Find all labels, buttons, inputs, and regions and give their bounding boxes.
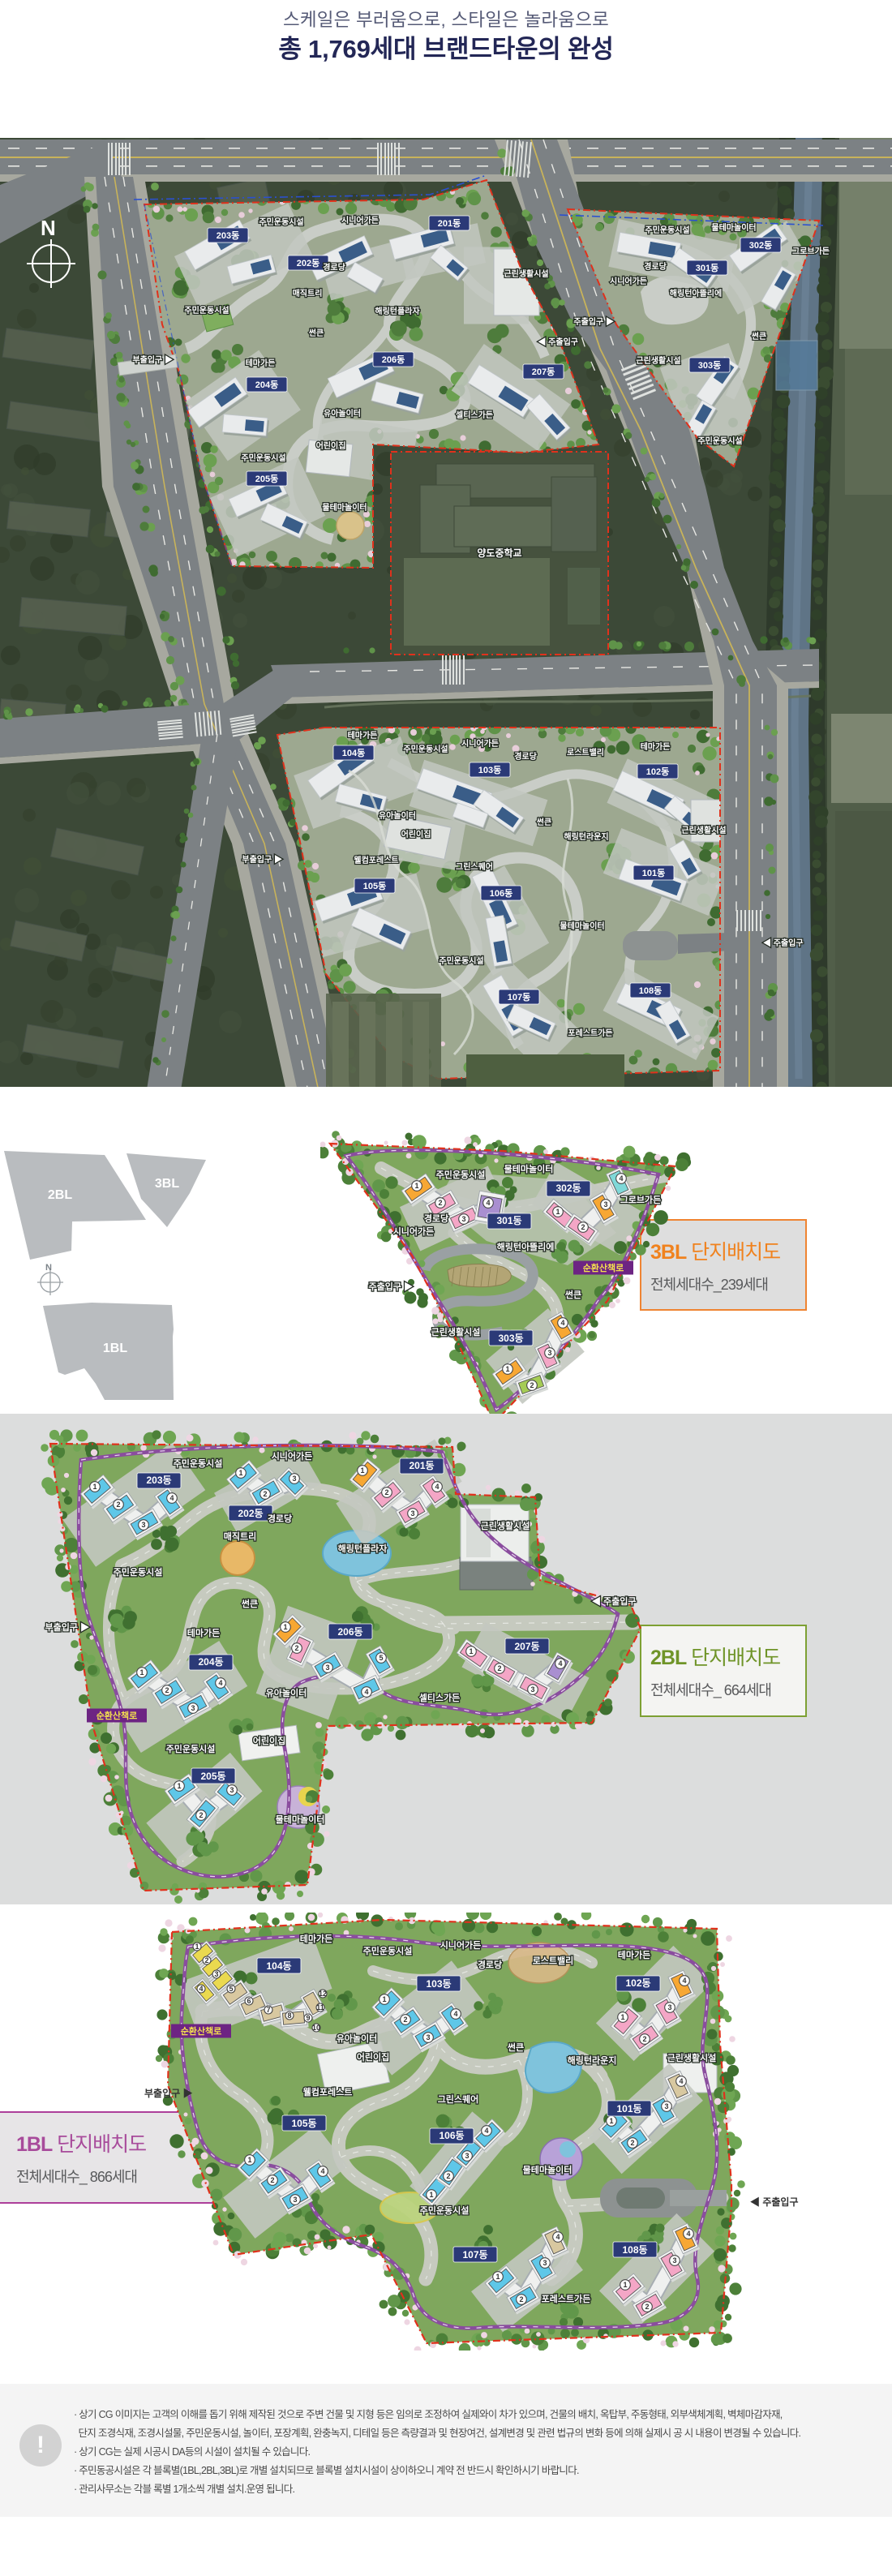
svg-text:302동: 302동 xyxy=(749,240,772,251)
svg-text:3: 3 xyxy=(667,2003,671,2011)
svg-text:4: 4 xyxy=(486,1199,490,1207)
svg-text:양도중학교: 양도중학교 xyxy=(477,547,521,559)
svg-text:1: 1 xyxy=(247,2156,251,2164)
svg-text:1: 1 xyxy=(429,2191,433,2199)
svg-text:경로당: 경로당 xyxy=(424,1213,448,1224)
svg-text:303동: 303동 xyxy=(498,1333,523,1344)
svg-text:부출입구 ▶: 부출입구 ▶ xyxy=(242,854,282,865)
svg-text:근린생활시설: 근린생활시설 xyxy=(481,1520,530,1531)
svg-text:3: 3 xyxy=(530,1685,534,1694)
svg-text:순환산책로: 순환산책로 xyxy=(583,1262,624,1273)
svg-text:물테마놀이터: 물테마놀이터 xyxy=(504,1163,554,1174)
svg-text:1: 1 xyxy=(609,2117,613,2125)
svg-text:303동: 303동 xyxy=(698,360,721,371)
svg-text:4: 4 xyxy=(218,1679,222,1687)
svg-text:105동: 105동 xyxy=(363,881,386,891)
svg-text:3: 3 xyxy=(542,2259,547,2267)
svg-text:주민운동시설: 주민운동시설 xyxy=(114,1566,163,1578)
svg-text:매직트리: 매직트리 xyxy=(293,288,323,298)
svg-text:시니어가든: 시니어가든 xyxy=(272,1450,313,1462)
svg-text:4: 4 xyxy=(619,1174,623,1183)
svg-text:썬큰: 썬큰 xyxy=(565,1289,581,1300)
svg-text:유아놀이터: 유아놀이터 xyxy=(337,2033,378,2044)
svg-text:해링턴플라자: 해링턴플라자 xyxy=(375,306,420,316)
svg-text:201동: 201동 xyxy=(409,1460,434,1471)
svg-text:경로당: 경로당 xyxy=(268,1513,292,1524)
svg-text:근린생활시설: 근린생활시설 xyxy=(504,268,548,279)
svg-text:테마가든: 테마가든 xyxy=(300,1933,332,1944)
svg-text:205동: 205동 xyxy=(200,1771,225,1782)
svg-text:10: 10 xyxy=(312,2024,320,2032)
svg-text:104동: 104동 xyxy=(342,748,365,758)
svg-text:6: 6 xyxy=(247,1997,251,2005)
svg-text:4: 4 xyxy=(169,1494,174,1502)
svg-text:102동: 102동 xyxy=(625,1977,650,1989)
svg-text:12: 12 xyxy=(319,1990,327,1998)
svg-text:1: 1 xyxy=(555,1208,560,1216)
svg-text:3: 3 xyxy=(293,2196,297,2204)
svg-text:2: 2 xyxy=(270,2176,274,2184)
svg-text:시니어가든: 시니어가든 xyxy=(393,1226,435,1237)
svg-text:물테마놀이터: 물테마놀이터 xyxy=(322,502,367,513)
svg-text:어린이집: 어린이집 xyxy=(253,1735,285,1746)
svg-text:◀ 주출입구: ◀ 주출입구 xyxy=(592,1595,637,1607)
svg-text:1: 1 xyxy=(505,1365,509,1373)
svg-text:물테마놀이터: 물테마놀이터 xyxy=(711,222,756,233)
svg-text:4: 4 xyxy=(686,2230,690,2238)
svg-text:주민운동시설: 주민운동시설 xyxy=(174,1458,223,1469)
svg-text:5: 5 xyxy=(229,1985,233,1993)
svg-text:103동: 103동 xyxy=(426,1978,451,1990)
svg-text:4: 4 xyxy=(679,2077,683,2085)
svg-text:그로브가든: 그로브가든 xyxy=(792,246,830,256)
svg-text:시니어가든: 시니어가든 xyxy=(461,738,499,749)
svg-text:8: 8 xyxy=(287,2011,291,2020)
svg-text:유아놀이터: 유아놀이터 xyxy=(266,1687,307,1698)
svg-text:1BL: 1BL xyxy=(103,1342,127,1355)
svg-text:썬큰: 썬큰 xyxy=(309,328,324,338)
svg-text:4: 4 xyxy=(435,1483,439,1491)
svg-text:207동: 207동 xyxy=(532,367,555,377)
svg-text:물테마놀이터: 물테마놀이터 xyxy=(523,2164,573,2175)
svg-text:시니어가든: 시니어가든 xyxy=(610,276,647,286)
svg-text:3: 3 xyxy=(214,1970,218,1978)
svg-text:주민운동시설: 주민운동시설 xyxy=(259,217,303,227)
svg-text:썬큰: 썬큰 xyxy=(508,2041,524,2053)
svg-text:206동: 206동 xyxy=(382,354,405,365)
svg-text:106동: 106동 xyxy=(439,2130,464,2141)
svg-text:202동: 202동 xyxy=(297,258,319,268)
svg-text:테마가든: 테마가든 xyxy=(348,730,378,741)
svg-text:1: 1 xyxy=(620,2013,624,2021)
svg-text:테마가든: 테마가든 xyxy=(246,358,276,368)
svg-text:그로브가든: 그로브가든 xyxy=(620,1194,662,1205)
svg-text:어린이집: 어린이집 xyxy=(316,440,346,451)
svg-text:2: 2 xyxy=(497,1664,501,1672)
svg-text:2: 2 xyxy=(581,1223,585,1231)
svg-text:1: 1 xyxy=(469,1647,473,1655)
svg-text:3BL: 3BL xyxy=(155,1177,179,1191)
svg-text:3: 3 xyxy=(426,2033,430,2041)
svg-text:셀티스가든: 셀티스가든 xyxy=(419,1692,461,1703)
svg-text:N: N xyxy=(41,216,56,240)
svg-text:1: 1 xyxy=(139,1668,144,1677)
svg-text:3: 3 xyxy=(191,1704,195,1712)
svg-text:주출입구 ▶: 주출입구 ▶ xyxy=(368,1281,413,1292)
svg-text:시니어가든: 시니어가든 xyxy=(341,215,379,225)
svg-text:경로당: 경로당 xyxy=(514,751,537,762)
svg-text:1: 1 xyxy=(195,1943,199,1951)
svg-text:주민운동시설: 주민운동시설 xyxy=(363,1945,413,1956)
svg-text:4: 4 xyxy=(320,2167,324,2175)
svg-text:204동: 204동 xyxy=(255,380,278,390)
svg-text:105동: 105동 xyxy=(291,2118,316,2129)
svg-text:4: 4 xyxy=(364,1688,368,1696)
svg-text:로스트밸리: 로스트밸리 xyxy=(567,747,604,758)
svg-text:그린스퀘어: 그린스퀘어 xyxy=(456,861,493,872)
svg-text:주민운동시설: 주민운동시설 xyxy=(403,744,448,754)
svg-text:2: 2 xyxy=(645,2303,649,2311)
svg-text:물테마놀이터: 물테마놀이터 xyxy=(276,1814,325,1825)
svg-text:순환산책로: 순환산책로 xyxy=(181,2025,222,2037)
svg-text:부출입구 ▶: 부출입구 ▶ xyxy=(45,1621,89,1633)
svg-text:시니어가든: 시니어가든 xyxy=(440,1939,482,1951)
svg-text:2: 2 xyxy=(530,1381,534,1389)
svg-text:◀ 주출입구: ◀ 주출입구 xyxy=(763,938,804,948)
svg-text:경로당: 경로당 xyxy=(478,1959,502,1970)
svg-text:1: 1 xyxy=(92,1483,96,1491)
svg-text:3: 3 xyxy=(141,1521,145,1529)
svg-text:107동: 107동 xyxy=(462,2249,487,2260)
svg-text:101동: 101동 xyxy=(616,2103,641,2114)
svg-text:103동: 103동 xyxy=(478,765,501,775)
svg-text:2: 2 xyxy=(263,1490,267,1498)
svg-text:301동: 301동 xyxy=(696,263,718,273)
svg-text:201동: 201동 xyxy=(438,218,461,229)
svg-text:경로당: 경로당 xyxy=(644,261,667,272)
svg-text:N: N xyxy=(45,1263,52,1273)
svg-text:7: 7 xyxy=(266,2006,270,2014)
svg-text:203동: 203동 xyxy=(217,230,239,241)
svg-text:웰컴포레스트: 웰컴포레스트 xyxy=(303,2086,353,2097)
svg-text:어린이집: 어린이집 xyxy=(357,2051,389,2063)
svg-text:2: 2 xyxy=(630,2139,634,2147)
svg-text:주민운동시설: 주민운동시설 xyxy=(645,225,689,235)
svg-text:주민운동시설: 주민운동시설 xyxy=(436,1169,486,1180)
svg-text:테마가든: 테마가든 xyxy=(187,1627,220,1638)
svg-text:주민운동시설: 주민운동시설 xyxy=(697,436,742,446)
svg-text:주민운동시설: 주민운동시설 xyxy=(241,453,285,463)
svg-text:4: 4 xyxy=(555,2233,560,2241)
svg-text:경로당: 경로당 xyxy=(323,262,345,273)
svg-text:2: 2 xyxy=(116,1501,120,1509)
svg-text:108동: 108동 xyxy=(639,985,662,996)
svg-text:근린생활시설: 근린생활시설 xyxy=(636,355,680,366)
svg-text:웰컴포레스트: 웰컴포레스트 xyxy=(354,855,398,865)
svg-text:해링턴아뜰리에: 해링턴아뜰리에 xyxy=(497,1241,555,1252)
svg-text:순환산책로: 순환산책로 xyxy=(96,1710,138,1721)
svg-text:4: 4 xyxy=(453,2010,457,2018)
svg-text:104동: 104동 xyxy=(266,1960,291,1972)
svg-text:3: 3 xyxy=(603,1200,607,1209)
svg-text:어린이집: 어린이집 xyxy=(401,829,431,839)
svg-text:1: 1 xyxy=(238,1469,242,1477)
svg-text:9: 9 xyxy=(306,2014,310,2022)
svg-text:3: 3 xyxy=(461,1215,465,1223)
svg-text:썬큰: 썬큰 xyxy=(752,331,766,341)
svg-text:106동: 106동 xyxy=(490,888,512,899)
svg-text:물테마놀이터: 물테마놀이터 xyxy=(560,921,604,931)
svg-text:테마가든: 테마가든 xyxy=(618,1949,650,1960)
svg-text:2BL: 2BL xyxy=(48,1188,72,1202)
svg-text:2: 2 xyxy=(204,1956,208,1964)
svg-text:5: 5 xyxy=(379,1654,383,1662)
svg-text:주출입구 ▶: 주출입구 ▶ xyxy=(573,316,614,327)
svg-text:매직트리: 매직트리 xyxy=(224,1531,256,1542)
svg-text:4: 4 xyxy=(199,1985,203,1993)
svg-text:해링턴라운지: 해링턴라운지 xyxy=(568,2054,617,2066)
svg-text:근린생활시설: 근린생활시설 xyxy=(667,2052,717,2063)
svg-text:203동: 203동 xyxy=(146,1475,171,1486)
svg-text:근린생활시설: 근린생활시설 xyxy=(431,1326,481,1337)
svg-text:3: 3 xyxy=(229,1786,234,1794)
svg-text:주민운동시설: 주민운동시설 xyxy=(166,1743,216,1754)
svg-text:3: 3 xyxy=(325,1664,329,1672)
svg-text:2: 2 xyxy=(165,1686,169,1694)
svg-text:1: 1 xyxy=(495,2273,500,2281)
svg-text:3: 3 xyxy=(410,1509,414,1518)
svg-text:204동: 204동 xyxy=(198,1656,223,1668)
svg-text:205동: 205동 xyxy=(255,474,278,484)
svg-text:포레스트가든: 포레스트가든 xyxy=(568,1028,612,1038)
svg-text:◀ 주출입구: ◀ 주출입구 xyxy=(538,337,578,347)
svg-text:1: 1 xyxy=(360,1466,364,1475)
svg-text:2: 2 xyxy=(199,1811,203,1819)
svg-text:1: 1 xyxy=(283,1623,287,1631)
svg-text:107동: 107동 xyxy=(508,992,530,1002)
svg-text:셀티스가든: 셀티스가든 xyxy=(456,410,493,420)
svg-text:101동: 101동 xyxy=(642,868,665,878)
svg-text:4: 4 xyxy=(682,1977,686,1985)
svg-text:2: 2 xyxy=(384,1488,388,1496)
svg-text:주민운동시설: 주민운동시설 xyxy=(184,305,229,316)
svg-text:주민운동시설: 주민운동시설 xyxy=(439,955,483,966)
svg-text:2: 2 xyxy=(519,2295,523,2303)
svg-text:1: 1 xyxy=(623,2281,627,2289)
svg-text:206동: 206동 xyxy=(337,1626,362,1638)
svg-text:4: 4 xyxy=(560,1319,564,1327)
svg-text:3: 3 xyxy=(664,2102,668,2110)
svg-text:2: 2 xyxy=(403,2016,407,2024)
svg-text:썬큰: 썬큰 xyxy=(537,817,551,827)
svg-text:테마가든: 테마가든 xyxy=(641,741,671,752)
svg-text:202동: 202동 xyxy=(238,1508,263,1519)
svg-text:근린생활시설: 근린생활시설 xyxy=(681,825,726,835)
svg-text:포레스트가든: 포레스트가든 xyxy=(542,2293,591,2304)
svg-text:4: 4 xyxy=(558,1659,562,1668)
svg-text:2: 2 xyxy=(294,1644,298,1652)
svg-text:3: 3 xyxy=(547,1349,551,1357)
svg-text:301동: 301동 xyxy=(496,1215,521,1226)
svg-text:부출입구 ▶: 부출입구 ▶ xyxy=(132,354,173,365)
svg-text:유아놀이터: 유아놀이터 xyxy=(324,408,361,419)
svg-text:1: 1 xyxy=(177,1782,181,1790)
svg-text:2: 2 xyxy=(446,2172,450,2180)
svg-text:302동: 302동 xyxy=(555,1183,581,1194)
svg-text:207동: 207동 xyxy=(514,1641,539,1652)
svg-text:3: 3 xyxy=(465,2152,469,2160)
svg-text:주민운동시설: 주민운동시설 xyxy=(420,2205,470,2216)
svg-text:102동: 102동 xyxy=(646,766,669,777)
svg-text:해링턴아뜰리에: 해링턴아뜰리에 xyxy=(670,288,722,298)
svg-text:4: 4 xyxy=(484,2127,488,2135)
svg-text:3: 3 xyxy=(672,2256,676,2265)
svg-text:1: 1 xyxy=(414,1182,418,1190)
svg-text:108동: 108동 xyxy=(622,2244,647,2256)
svg-text:3: 3 xyxy=(292,1475,296,1483)
svg-text:썬큰: 썬큰 xyxy=(242,1598,258,1609)
svg-text:그린스퀘어: 그린스퀘어 xyxy=(438,2093,479,2105)
svg-text:2: 2 xyxy=(642,2035,646,2043)
svg-text:해링턴플라자: 해링턴플라자 xyxy=(338,1543,388,1554)
svg-text:유아놀이터: 유아놀이터 xyxy=(379,810,416,821)
svg-text:1: 1 xyxy=(382,1995,386,2003)
svg-text:해링턴라운지: 해링턴라운지 xyxy=(564,831,608,842)
svg-text:로스트밸리: 로스트밸리 xyxy=(533,1955,574,1966)
svg-text:11: 11 xyxy=(316,2003,324,2011)
svg-text:2: 2 xyxy=(438,1199,442,1207)
